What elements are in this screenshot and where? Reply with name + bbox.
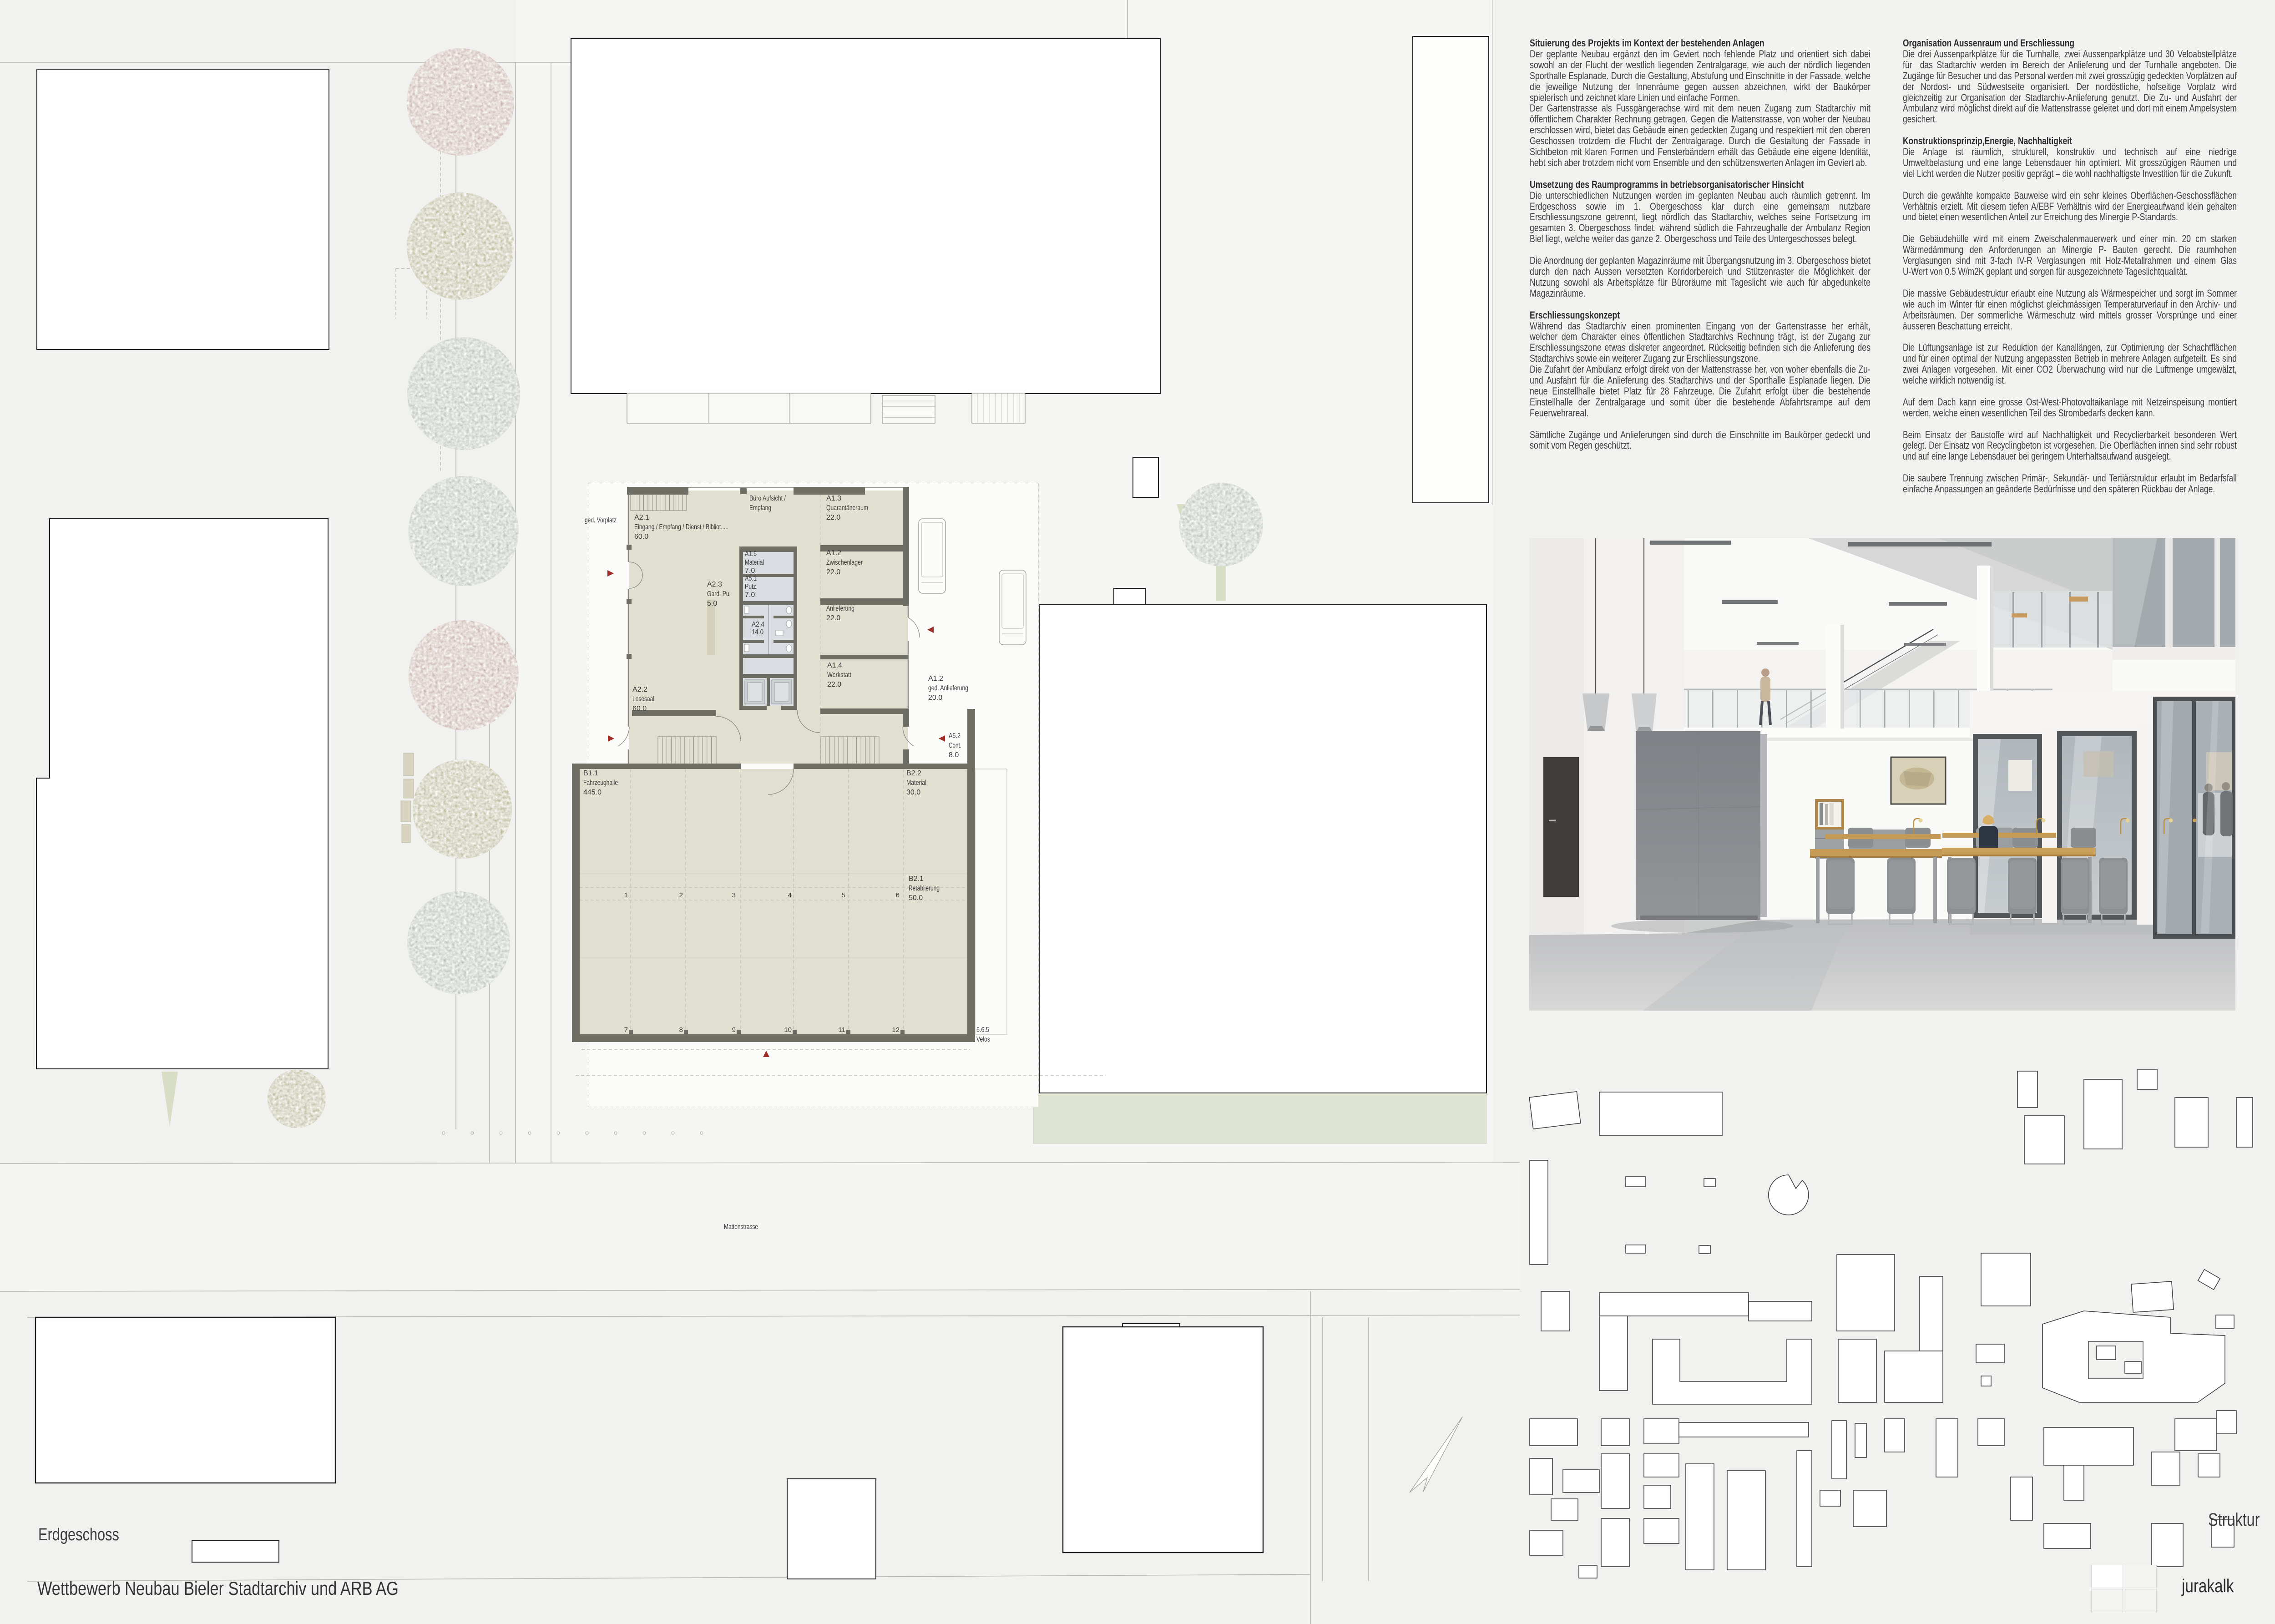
svg-text:8.0: 8.0 — [949, 751, 959, 759]
svg-text:60.0: 60.0 — [634, 533, 648, 541]
svg-text:22.0: 22.0 — [826, 514, 840, 521]
svg-text:Gard. Pu.: Gard. Pu. — [707, 590, 731, 598]
svg-text:Cont.: Cont. — [949, 742, 961, 749]
svg-text:7.0: 7.0 — [745, 591, 755, 599]
svg-text:5.0: 5.0 — [707, 600, 717, 607]
svg-text:A1.2: A1.2 — [826, 549, 841, 557]
svg-text:22.0: 22.0 — [826, 568, 840, 576]
svg-text:B2.2: B2.2 — [906, 769, 921, 777]
svg-text:ged. Vorplatz: ged. Vorplatz — [585, 516, 617, 524]
svg-text:A5.1: A5.1 — [745, 575, 757, 582]
svg-text:A1.4: A1.4 — [827, 662, 842, 669]
svg-text:5: 5 — [842, 891, 845, 899]
svg-text:6.6.5: 6.6.5 — [976, 1026, 989, 1034]
svg-text:Werkstatt: Werkstatt — [827, 671, 851, 679]
svg-text:30.0: 30.0 — [906, 789, 920, 796]
svg-text:1: 1 — [624, 891, 628, 899]
svg-text:11: 11 — [838, 1026, 845, 1034]
svg-text:14.0: 14.0 — [752, 628, 763, 636]
svg-text:Anlieferung: Anlieferung — [826, 605, 854, 612]
svg-text:Quarantäneraum: Quarantäneraum — [826, 504, 868, 512]
svg-text:3: 3 — [732, 891, 736, 899]
svg-text:22.0: 22.0 — [826, 614, 840, 622]
svg-text:Mattenstrasse: Mattenstrasse — [724, 1223, 758, 1231]
svg-text:A1.2: A1.2 — [928, 675, 943, 683]
svg-text:20.0: 20.0 — [928, 694, 942, 702]
svg-text:A1.5: A1.5 — [745, 550, 757, 558]
svg-text:A2.2: A2.2 — [632, 686, 647, 693]
svg-text:7: 7 — [624, 1026, 628, 1034]
svg-text:A2.4: A2.4 — [752, 621, 764, 628]
svg-text:Material: Material — [906, 779, 926, 787]
svg-text:Eingang / Empfang / Dienst / B: Eingang / Empfang / Dienst / Bibliot....… — [634, 523, 728, 531]
svg-text:Empfang: Empfang — [749, 504, 771, 512]
svg-text:Fahrzeughalle: Fahrzeughalle — [583, 779, 618, 787]
svg-text:B2.1: B2.1 — [909, 875, 924, 883]
svg-text:10: 10 — [784, 1026, 792, 1034]
svg-text:22.0: 22.0 — [827, 681, 841, 688]
svg-text:12: 12 — [892, 1026, 900, 1034]
svg-text:4: 4 — [788, 891, 792, 899]
svg-text:Büro Aufsicht /: Büro Aufsicht / — [749, 495, 786, 502]
svg-text:50.0: 50.0 — [909, 894, 923, 902]
svg-text:Zwischenlager: Zwischenlager — [826, 559, 863, 567]
svg-text:9: 9 — [732, 1026, 736, 1034]
svg-text:B1.1: B1.1 — [583, 769, 598, 777]
svg-text:A5.2: A5.2 — [949, 732, 961, 740]
svg-text:Velos: Velos — [976, 1036, 990, 1043]
svg-text:Putz.: Putz. — [745, 583, 758, 591]
svg-text:Material: Material — [745, 559, 764, 567]
svg-text:Lesesaal: Lesesaal — [632, 695, 654, 703]
svg-text:A1.3: A1.3 — [826, 495, 841, 502]
svg-text:6: 6 — [896, 891, 900, 899]
svg-text:445.0: 445.0 — [583, 789, 602, 796]
svg-text:2: 2 — [679, 891, 683, 899]
svg-text:A2.1: A2.1 — [634, 514, 649, 521]
svg-text:60.0: 60.0 — [632, 705, 647, 713]
svg-text:Retablierung: Retablierung — [909, 885, 940, 892]
svg-text:ged. Anlieferung: ged. Anlieferung — [928, 684, 968, 692]
svg-text:8: 8 — [679, 1026, 683, 1034]
svg-text:7.0: 7.0 — [745, 567, 755, 575]
svg-text:A2.3: A2.3 — [707, 581, 722, 588]
